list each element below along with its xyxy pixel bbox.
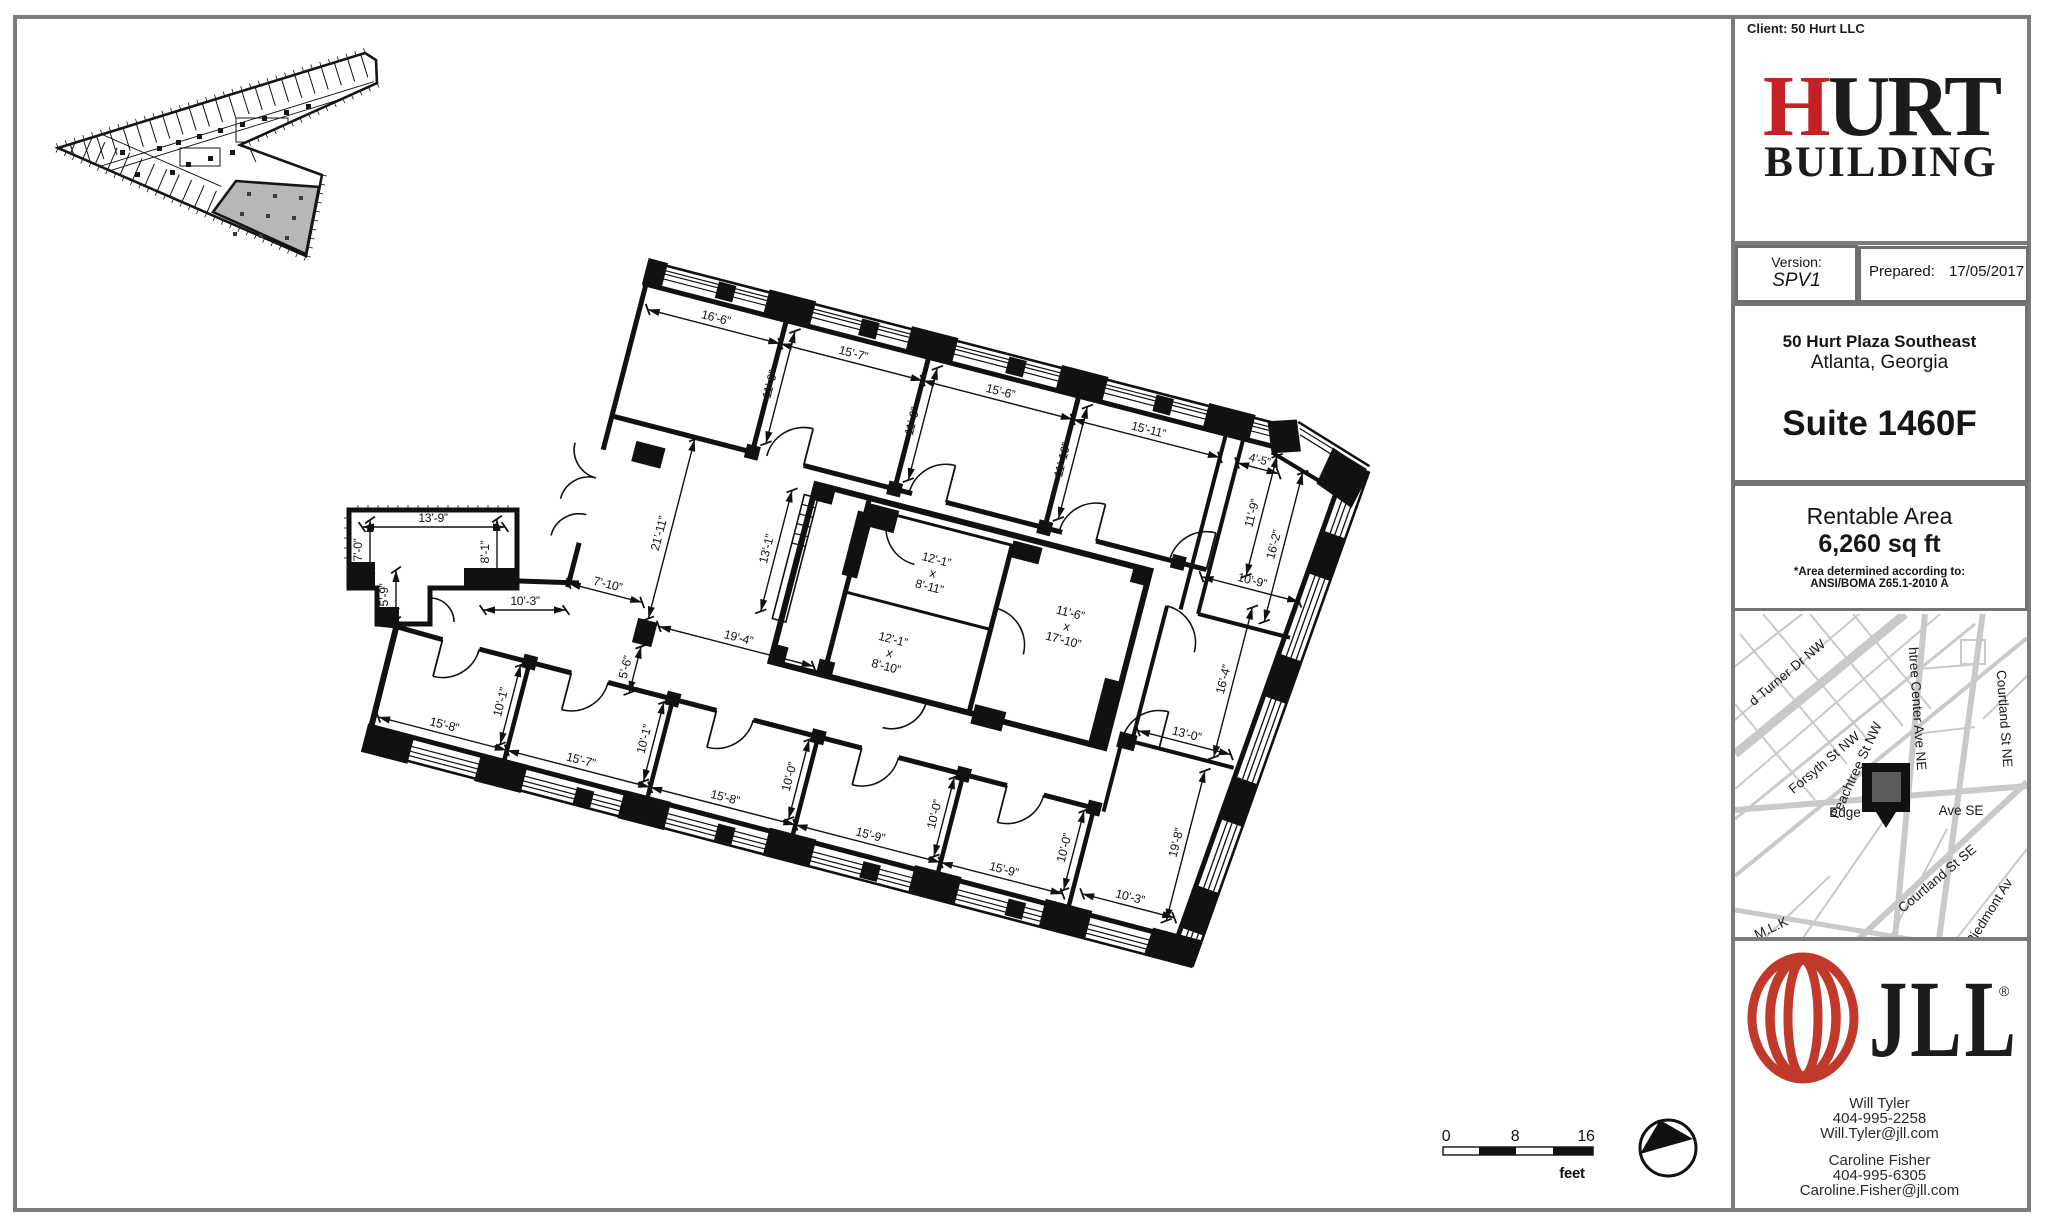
svg-text:15’-9”: 15’-9”	[854, 824, 886, 845]
svg-text:16: 16	[1577, 1128, 1595, 1145]
svg-text:10’-3”: 10’-3”	[510, 594, 540, 608]
svg-text:15’-8”: 15’-8”	[428, 714, 460, 735]
svg-text:7’-10”: 7’-10”	[592, 574, 624, 595]
svg-text:x: x	[1062, 619, 1071, 634]
svg-text:feet: feet	[1559, 1165, 1585, 1182]
svg-text:Piedmont Av: Piedmont Av	[1963, 875, 2016, 938]
svg-text:10’-3”: 10’-3”	[1114, 886, 1146, 907]
svg-text:15’-7”: 15’-7”	[837, 343, 869, 364]
svg-text:JLL: JLL	[1869, 958, 2019, 1081]
svg-text:15’-6”: 15’-6”	[984, 381, 1016, 402]
svg-text:x: x	[885, 645, 894, 660]
svg-text:7’-0”: 7’-0”	[351, 538, 365, 561]
svg-text:Ave SE: Ave SE	[1939, 803, 1984, 818]
svg-text:5’-6”: 5’-6”	[616, 654, 635, 680]
svg-text:Courtland St NE: Courtland St NE	[1994, 670, 2016, 768]
svg-text:15’-9”: 15’-9”	[988, 859, 1020, 880]
svg-text:16’-6”: 16’-6”	[700, 307, 732, 328]
svg-text:11’-9”: 11’-9”	[760, 369, 781, 400]
svg-text:15’-7”: 15’-7”	[565, 750, 597, 771]
svg-text:8’-11”: 8’-11”	[914, 576, 945, 597]
svg-text:13’-0”: 13’-0”	[1171, 723, 1203, 744]
svg-text:Edge: Edge	[1829, 805, 1861, 820]
svg-text:0: 0	[1442, 1128, 1451, 1145]
svg-text:8’-1”: 8’-1”	[478, 540, 492, 563]
svg-text:15’-8”: 15’-8”	[709, 787, 741, 808]
svg-text:19’-4”: 19’-4”	[722, 627, 754, 648]
svg-text:x: x	[928, 566, 937, 581]
svg-text:5’-9”: 5’-9”	[377, 583, 391, 606]
svg-text:11’-9”: 11’-9”	[902, 405, 923, 436]
svg-text:13’-9”: 13’-9”	[418, 511, 448, 525]
svg-text:17’-10”: 17’-10”	[1044, 629, 1082, 652]
svg-text:15’-11”: 15’-11”	[1130, 419, 1168, 441]
svg-text:10’-9”: 10’-9”	[1236, 570, 1268, 591]
svg-text:8: 8	[1511, 1128, 1520, 1145]
svg-text:Courtland St SE: Courtland St SE	[1895, 842, 1979, 916]
svg-text:8’-10”: 8’-10”	[870, 656, 902, 677]
svg-text:®: ®	[1999, 983, 2010, 999]
